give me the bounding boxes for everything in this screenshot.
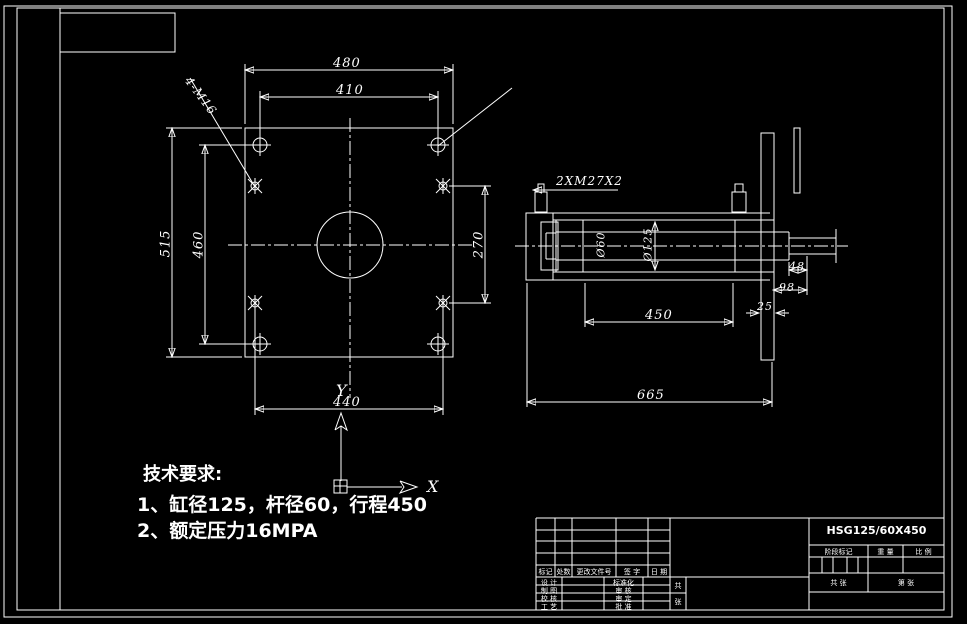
dim-410: 410 [336, 83, 364, 98]
tb-header-change-file: 更改文件号 [572, 567, 616, 577]
x-axis-label: X [427, 477, 438, 496]
dim-48: 48 [789, 260, 805, 273]
tb-header-count: 处数 [555, 567, 572, 577]
bore-diameter-label: Ø125 [642, 223, 655, 267]
dim-480: 480 [333, 56, 361, 71]
dim-450: 450 [645, 308, 673, 323]
tech-requirement-1: 1、缸径125，杆径60，行程450 [137, 490, 427, 517]
tb-sheet-number: 第 张 [868, 578, 944, 588]
cad-drawing-sheet: 480 410 515 460 270 440 4-M16 Y X 2XM27X… [0, 0, 967, 624]
tech-requirement-2: 2、额定压力16MPA [137, 516, 317, 543]
left-view-linework [166, 64, 512, 415]
dim-665: 665 [637, 388, 665, 403]
tech-requirements-title: 技术要求: [143, 460, 222, 486]
tb-total-sheets: 共 张 [809, 578, 868, 588]
tb-header-mark: 标记 [536, 567, 555, 577]
dim-98: 98 [779, 281, 795, 294]
dim-270: 270 [472, 225, 487, 265]
rod-diameter-label: Ø60 [595, 225, 608, 265]
dim-25: 25 [757, 300, 773, 313]
y-axis-label: Y [336, 381, 347, 400]
dim-460: 460 [192, 225, 207, 265]
tb-row-approve: 批 准 [604, 602, 643, 612]
part-number: HSG125/60X450 [809, 524, 944, 537]
tb-header-signature: 签 字 [616, 567, 648, 577]
ucs-icon [334, 413, 417, 493]
tb-scale: 比 例 [903, 547, 944, 557]
port-thread-label: 2XM27X2 [556, 174, 623, 188]
tb-vertical-cell-1: 共 [670, 581, 686, 591]
tb-weight: 重 量 [868, 547, 903, 557]
tb-vertical-cell-2: 张 [670, 597, 686, 607]
dim-515: 515 [159, 224, 174, 264]
tb-header-date: 日 期 [648, 567, 670, 577]
tb-stage-mark: 阶段标记 [809, 547, 868, 557]
tb-row-process: 工 艺 [536, 602, 562, 612]
